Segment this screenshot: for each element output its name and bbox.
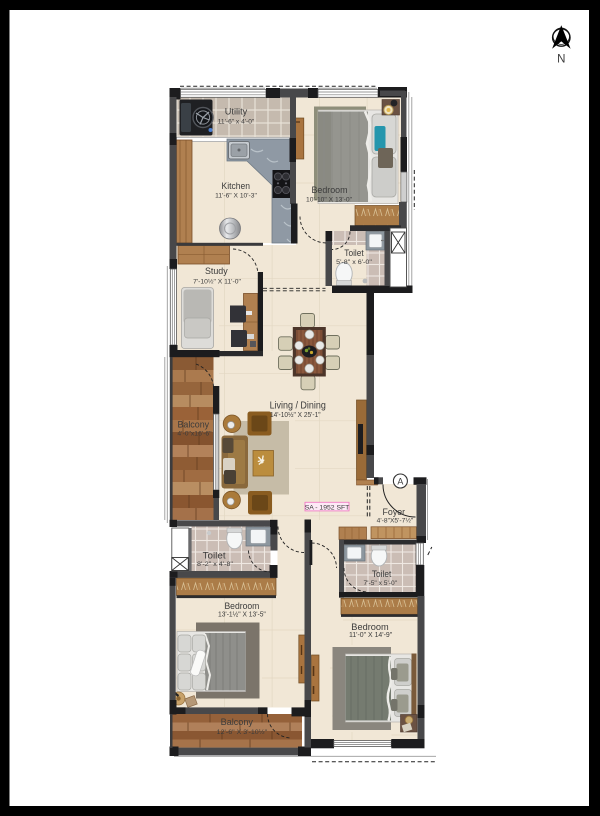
svg-text:N: N bbox=[557, 54, 565, 66]
svg-text:Kitchen: Kitchen bbox=[222, 181, 251, 191]
svg-text:Toilet: Toilet bbox=[344, 248, 364, 258]
svg-text:14'-10½" X 25'-1": 14'-10½" X 25'-1" bbox=[270, 411, 321, 419]
svg-text:Utility: Utility bbox=[225, 107, 248, 117]
svg-text:11'-6" x 4'-0": 11'-6" x 4'-0" bbox=[218, 118, 255, 125]
svg-text:11'-6" X 10'-3": 11'-6" X 10'-3" bbox=[215, 193, 257, 200]
svg-text:13'-1½" X 13'-5": 13'-1½" X 13'-5" bbox=[218, 611, 266, 619]
svg-text:4'-8"X5'-7½": 4'-8"X5'-7½" bbox=[377, 516, 414, 524]
svg-text:Living / Dining: Living / Dining bbox=[270, 401, 326, 412]
svg-text:A: A bbox=[397, 476, 403, 486]
svg-text:Bedroom: Bedroom bbox=[224, 601, 259, 611]
svg-text:SA - 1952 SFT: SA - 1952 SFT bbox=[305, 504, 350, 511]
svg-text:Foyer: Foyer bbox=[383, 507, 406, 517]
svg-text:Toilet: Toilet bbox=[372, 569, 392, 579]
svg-text:12'-6" X 3'-10½": 12'-6" X 3'-10½" bbox=[217, 728, 268, 736]
svg-text:Bedroom: Bedroom bbox=[351, 622, 388, 632]
svg-text:Balcony: Balcony bbox=[221, 717, 254, 727]
svg-text:8'-2" x 4'-8": 8'-2" x 4'-8" bbox=[197, 561, 234, 568]
svg-text:Balcony: Balcony bbox=[177, 419, 209, 429]
svg-text:7'-10½" X 11'-0": 7'-10½" X 11'-0" bbox=[193, 277, 241, 285]
svg-text:Toilet: Toilet bbox=[203, 550, 227, 560]
svg-text:4'-0"x16'-6": 4'-0"x16'-6" bbox=[177, 430, 212, 437]
svg-text:7'-5" x 5'-0": 7'-5" x 5'-0" bbox=[364, 580, 398, 587]
svg-text:10'-10" X 13'-0": 10'-10" X 13'-0" bbox=[306, 197, 353, 204]
svg-text:Bedroom: Bedroom bbox=[312, 185, 348, 195]
svg-text:5'-8" x 6'-0": 5'-8" x 6'-0" bbox=[336, 259, 372, 266]
svg-text:Study: Study bbox=[205, 266, 228, 276]
svg-text:11'-0" X 14'-9": 11'-0" X 14'-9" bbox=[349, 632, 393, 639]
